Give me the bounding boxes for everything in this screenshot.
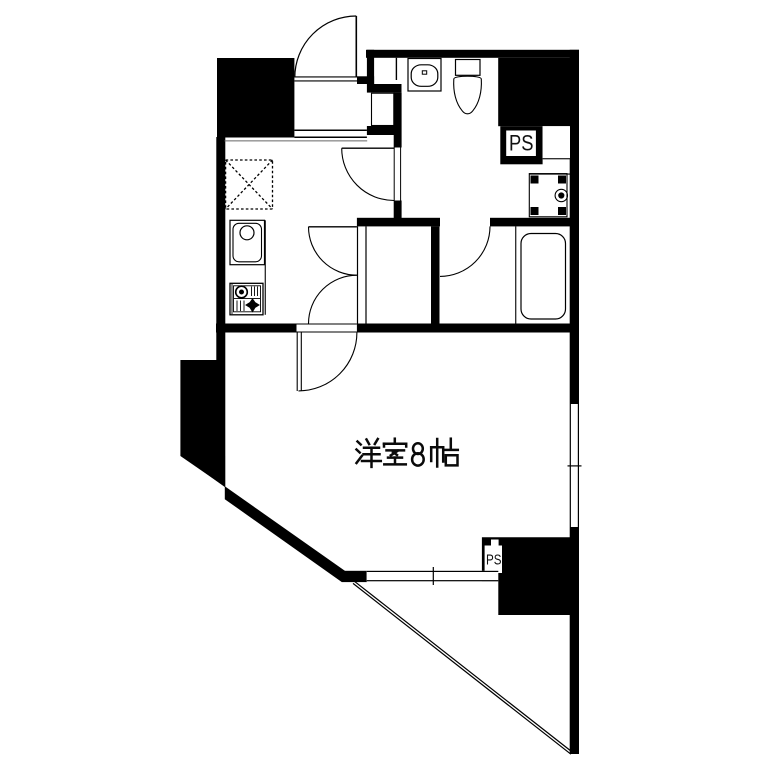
svg-text:PS: PS [509,131,534,156]
svg-text:PS: PS [486,552,502,569]
